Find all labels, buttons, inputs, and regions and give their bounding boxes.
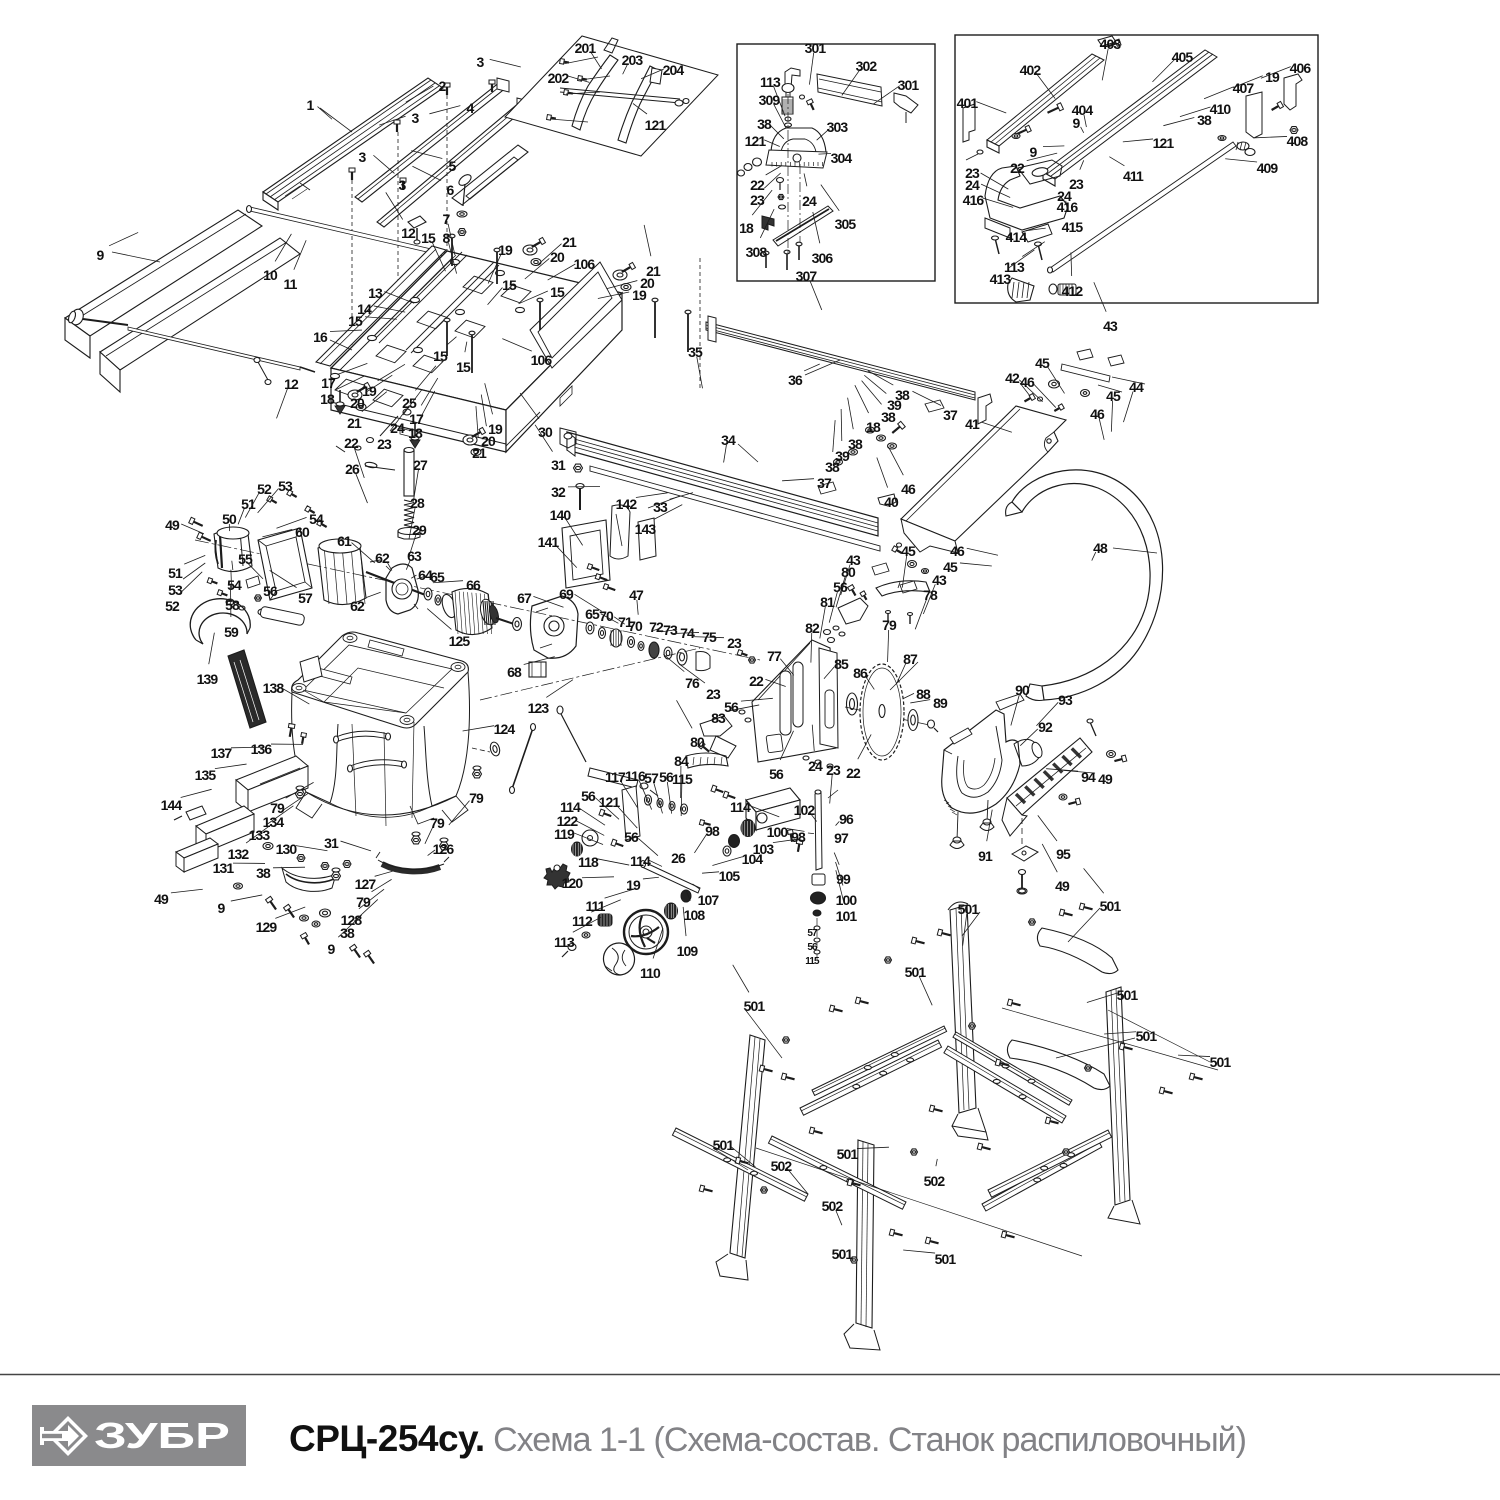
svg-text:38: 38 (1197, 112, 1212, 128)
svg-text:407: 407 (1233, 80, 1255, 96)
svg-text:23: 23 (1069, 176, 1084, 192)
svg-text:51: 51 (168, 565, 183, 581)
svg-text:100: 100 (767, 824, 789, 840)
svg-text:49: 49 (1055, 878, 1070, 894)
svg-text:201: 201 (575, 40, 597, 56)
svg-text:3: 3 (399, 177, 407, 193)
svg-text:56: 56 (581, 788, 596, 804)
svg-text:101: 101 (836, 908, 858, 924)
svg-text:501: 501 (905, 964, 927, 980)
svg-text:16: 16 (313, 329, 328, 345)
svg-text:127: 127 (355, 876, 377, 892)
svg-text:123: 123 (528, 700, 550, 716)
svg-text:ЗУБР: ЗУБР (94, 1415, 230, 1456)
svg-text:89: 89 (933, 695, 948, 711)
svg-text:106: 106 (531, 352, 553, 368)
svg-text:79: 79 (469, 790, 484, 806)
svg-text:26: 26 (345, 461, 360, 477)
svg-text:15: 15 (550, 284, 565, 300)
svg-text:306: 306 (812, 250, 834, 266)
svg-text:94: 94 (1081, 769, 1096, 785)
svg-text:65: 65 (585, 606, 600, 622)
svg-text:19: 19 (626, 877, 641, 893)
svg-text:18: 18 (739, 220, 754, 236)
svg-text:80: 80 (690, 734, 705, 750)
svg-text:22: 22 (1010, 160, 1025, 176)
svg-text:82: 82 (805, 620, 820, 636)
svg-text:9: 9 (328, 941, 336, 957)
svg-text:501: 501 (958, 901, 980, 917)
svg-text:53: 53 (168, 582, 183, 598)
svg-text:22: 22 (344, 435, 359, 451)
svg-text:67: 67 (517, 590, 532, 606)
svg-text:24: 24 (965, 177, 980, 193)
svg-text:501: 501 (935, 1251, 957, 1267)
svg-text:138: 138 (263, 680, 285, 696)
svg-text:135: 135 (195, 767, 217, 783)
svg-text:19: 19 (362, 383, 377, 399)
svg-text:81: 81 (820, 594, 835, 610)
svg-text:86: 86 (853, 665, 868, 681)
svg-text:104: 104 (742, 851, 764, 867)
svg-text:28: 28 (410, 495, 425, 511)
svg-text:52: 52 (165, 598, 180, 614)
svg-text:9: 9 (1073, 115, 1081, 131)
svg-text:303: 303 (827, 119, 849, 135)
svg-text:412: 412 (1062, 283, 1084, 299)
svg-text:102: 102 (794, 802, 816, 818)
svg-text:78: 78 (923, 587, 938, 603)
svg-text:414: 414 (1006, 229, 1028, 245)
svg-text:38: 38 (256, 865, 271, 881)
svg-text:45: 45 (1035, 355, 1050, 371)
svg-text:136: 136 (251, 741, 273, 757)
svg-text:68: 68 (507, 664, 522, 680)
svg-text:63: 63 (407, 548, 422, 564)
svg-text:113: 113 (760, 74, 781, 90)
svg-text:140: 140 (550, 507, 572, 523)
svg-text:80: 80 (841, 564, 856, 580)
svg-text:98: 98 (705, 823, 720, 839)
svg-text:309: 309 (759, 92, 781, 108)
svg-text:302: 302 (856, 58, 878, 74)
svg-text:25: 25 (402, 395, 417, 411)
svg-text:23: 23 (826, 762, 841, 778)
svg-text:29: 29 (412, 522, 427, 538)
svg-text:79: 79 (882, 617, 897, 633)
svg-text:109: 109 (677, 943, 699, 959)
svg-text:18: 18 (866, 419, 881, 435)
svg-text:37: 37 (817, 475, 832, 491)
svg-text:66: 66 (466, 577, 481, 593)
svg-text:112: 112 (572, 913, 593, 929)
svg-text:106: 106 (574, 256, 596, 272)
svg-text:203: 203 (622, 52, 644, 68)
svg-text:416: 416 (963, 192, 985, 208)
svg-text:97: 97 (834, 830, 849, 846)
svg-text:79: 79 (356, 894, 371, 910)
svg-text:11: 11 (284, 276, 298, 292)
svg-text:113: 113 (554, 934, 575, 950)
svg-text:125: 125 (449, 633, 471, 649)
svg-text:32: 32 (551, 484, 566, 500)
svg-text:79: 79 (430, 815, 445, 831)
svg-text:114: 114 (730, 799, 751, 815)
svg-text:416: 416 (1057, 199, 1079, 215)
svg-text:410: 410 (1210, 101, 1232, 117)
svg-text:4: 4 (467, 100, 475, 116)
svg-text:124: 124 (494, 721, 516, 737)
svg-text:23: 23 (377, 436, 392, 452)
svg-text:56: 56 (807, 942, 818, 953)
svg-text:119: 119 (554, 826, 575, 842)
svg-text:15: 15 (421, 230, 436, 246)
svg-text:91: 91 (978, 848, 993, 864)
svg-text:121: 121 (745, 133, 767, 149)
svg-text:49: 49 (154, 891, 169, 907)
svg-text:23: 23 (706, 686, 721, 702)
svg-text:307: 307 (796, 268, 818, 284)
svg-text:134: 134 (263, 814, 285, 830)
svg-text:118: 118 (578, 854, 599, 870)
svg-text:5: 5 (449, 158, 457, 174)
svg-text:24: 24 (808, 758, 823, 774)
svg-text:79: 79 (270, 800, 285, 816)
svg-text:95: 95 (1056, 846, 1071, 862)
svg-text:9: 9 (218, 900, 226, 916)
svg-text:100: 100 (836, 892, 858, 908)
svg-text:56: 56 (769, 766, 784, 782)
svg-text:121: 121 (599, 794, 621, 810)
svg-text:40: 40 (884, 494, 899, 510)
svg-text:411: 411 (1123, 168, 1144, 184)
svg-text:114: 114 (560, 799, 581, 815)
svg-text:31: 31 (551, 457, 566, 473)
svg-text:51: 51 (241, 496, 256, 512)
svg-text:45: 45 (1106, 388, 1121, 404)
svg-text:204: 204 (663, 62, 685, 78)
svg-text:305: 305 (835, 216, 857, 232)
svg-text:408: 408 (1287, 133, 1309, 149)
svg-text:37: 37 (943, 407, 958, 423)
svg-text:26: 26 (671, 850, 686, 866)
svg-text:45: 45 (901, 543, 916, 559)
svg-text:15: 15 (502, 277, 517, 293)
svg-text:49: 49 (1098, 771, 1113, 787)
svg-text:46: 46 (1020, 374, 1035, 390)
svg-text:403: 403 (1100, 36, 1122, 52)
svg-text:137: 137 (211, 745, 233, 761)
svg-text:61: 61 (337, 533, 352, 549)
svg-text:38: 38 (825, 459, 840, 475)
svg-text:144: 144 (161, 797, 183, 813)
svg-text:9: 9 (97, 247, 105, 263)
svg-text:15: 15 (456, 359, 471, 375)
svg-text:304: 304 (831, 150, 853, 166)
svg-text:501: 501 (1136, 1028, 1158, 1044)
svg-text:23: 23 (727, 635, 742, 651)
svg-text:12: 12 (401, 225, 416, 241)
svg-text:21: 21 (646, 263, 661, 279)
svg-text:22: 22 (750, 177, 765, 193)
svg-text:24: 24 (802, 193, 817, 209)
svg-text:54: 54 (227, 577, 242, 593)
svg-text:46: 46 (950, 543, 965, 559)
svg-text:84: 84 (674, 753, 689, 769)
svg-text:114: 114 (630, 853, 651, 869)
svg-text:58: 58 (225, 597, 240, 613)
svg-text:409: 409 (1257, 160, 1279, 176)
svg-text:46: 46 (901, 481, 916, 497)
svg-text:21: 21 (472, 445, 487, 461)
svg-text:501: 501 (1100, 898, 1122, 914)
svg-text:53: 53 (278, 478, 293, 494)
svg-text:501: 501 (837, 1146, 859, 1162)
svg-text:107: 107 (698, 892, 720, 908)
svg-text:3: 3 (359, 149, 367, 165)
svg-text:35: 35 (688, 344, 703, 360)
svg-text:501: 501 (832, 1246, 854, 1262)
svg-text:57: 57 (298, 590, 313, 606)
svg-text:502: 502 (771, 1158, 793, 1174)
svg-text:38: 38 (881, 409, 896, 425)
svg-text:93: 93 (1058, 692, 1073, 708)
svg-text:401: 401 (957, 95, 979, 111)
svg-text:70: 70 (628, 618, 643, 634)
svg-text:105: 105 (719, 868, 741, 884)
svg-text:139: 139 (197, 671, 219, 687)
svg-text:21: 21 (347, 415, 362, 431)
svg-text:402: 402 (1020, 62, 1042, 78)
svg-text:56: 56 (263, 583, 278, 599)
svg-text:132: 132 (228, 846, 250, 862)
svg-text:18: 18 (408, 425, 423, 441)
svg-text:56: 56 (833, 579, 848, 595)
svg-text:115: 115 (805, 956, 820, 967)
svg-text:52: 52 (257, 481, 272, 497)
svg-text:130: 130 (276, 841, 298, 857)
svg-text:13: 13 (368, 285, 383, 301)
svg-text:38: 38 (757, 116, 772, 132)
svg-text:116: 116 (625, 768, 646, 784)
svg-text:502: 502 (822, 1198, 844, 1214)
svg-text:141: 141 (538, 534, 560, 550)
svg-text:10: 10 (263, 267, 278, 283)
svg-text:42: 42 (1005, 370, 1020, 386)
svg-text:70: 70 (599, 608, 614, 624)
svg-text:405: 405 (1172, 49, 1194, 65)
svg-text:77: 77 (767, 648, 782, 664)
svg-text:62: 62 (375, 550, 390, 566)
svg-text:3: 3 (477, 54, 485, 70)
svg-text:406: 406 (1290, 60, 1312, 76)
svg-text:72: 72 (649, 619, 664, 635)
svg-text:СРЦ-254су. Схема 1-1 (Схема-со: СРЦ-254су. Схема 1-1 (Схема-состав. Стан… (289, 1418, 1246, 1459)
svg-text:108: 108 (684, 907, 706, 923)
svg-text:41: 41 (965, 416, 980, 432)
svg-text:24: 24 (390, 420, 405, 436)
svg-text:50: 50 (222, 511, 237, 527)
svg-text:301: 301 (805, 40, 827, 56)
svg-text:43: 43 (932, 572, 947, 588)
svg-text:19: 19 (498, 242, 513, 258)
svg-text:111: 111 (585, 898, 605, 914)
svg-text:308: 308 (746, 244, 768, 260)
svg-text:129: 129 (256, 919, 278, 935)
svg-text:7: 7 (443, 211, 451, 227)
svg-text:62: 62 (350, 598, 365, 614)
svg-text:21: 21 (562, 234, 577, 250)
svg-text:6: 6 (447, 182, 455, 198)
svg-text:1: 1 (307, 97, 315, 113)
svg-text:56: 56 (624, 829, 639, 845)
svg-text:30: 30 (538, 424, 553, 440)
svg-text:57: 57 (644, 770, 659, 786)
svg-text:2: 2 (439, 78, 447, 94)
svg-text:502: 502 (924, 1173, 946, 1189)
svg-text:43: 43 (1103, 318, 1118, 334)
svg-text:49: 49 (165, 517, 180, 533)
svg-text:60: 60 (295, 524, 310, 540)
svg-text:110: 110 (640, 965, 661, 981)
svg-text:27: 27 (413, 457, 428, 473)
svg-text:8: 8 (443, 230, 451, 246)
svg-text:20: 20 (350, 395, 365, 411)
svg-text:34: 34 (721, 432, 736, 448)
svg-text:31: 31 (324, 835, 339, 851)
svg-text:121: 121 (645, 117, 667, 133)
svg-text:3: 3 (412, 110, 420, 126)
svg-text:131: 131 (213, 860, 235, 876)
svg-text:48: 48 (1093, 540, 1108, 556)
svg-text:501: 501 (713, 1137, 735, 1153)
svg-text:9: 9 (1030, 144, 1038, 160)
svg-text:22: 22 (749, 673, 764, 689)
svg-text:15: 15 (433, 348, 448, 364)
svg-text:501: 501 (1117, 987, 1139, 1003)
svg-text:17: 17 (321, 375, 336, 391)
svg-text:90: 90 (1015, 682, 1030, 698)
svg-text:12: 12 (284, 376, 299, 392)
svg-text:38: 38 (848, 436, 863, 452)
svg-text:23: 23 (750, 192, 765, 208)
svg-text:19: 19 (1265, 69, 1280, 85)
svg-text:85: 85 (834, 656, 849, 672)
svg-text:46: 46 (1090, 406, 1105, 422)
svg-text:22: 22 (846, 765, 861, 781)
svg-text:18: 18 (320, 391, 335, 407)
svg-text:115: 115 (672, 771, 693, 787)
svg-text:117: 117 (605, 769, 626, 785)
svg-text:202: 202 (548, 70, 570, 86)
svg-text:56: 56 (724, 699, 739, 715)
svg-text:120: 120 (562, 875, 584, 891)
svg-text:57: 57 (807, 928, 818, 939)
svg-text:142: 142 (616, 496, 638, 512)
svg-text:143: 143 (635, 521, 657, 537)
svg-text:501: 501 (1210, 1054, 1232, 1070)
svg-text:413: 413 (990, 271, 1012, 287)
svg-text:55: 55 (238, 551, 253, 567)
svg-text:96: 96 (839, 811, 854, 827)
svg-text:69: 69 (559, 586, 574, 602)
svg-text:301: 301 (898, 77, 920, 93)
svg-text:56: 56 (659, 769, 674, 785)
svg-text:36: 36 (788, 372, 803, 388)
svg-text:47: 47 (629, 587, 644, 603)
svg-text:126: 126 (433, 841, 455, 857)
svg-text:54: 54 (309, 511, 324, 527)
svg-text:15: 15 (348, 313, 363, 329)
svg-text:415: 415 (1062, 219, 1084, 235)
svg-text:121: 121 (1153, 135, 1175, 151)
svg-text:59: 59 (224, 624, 239, 640)
